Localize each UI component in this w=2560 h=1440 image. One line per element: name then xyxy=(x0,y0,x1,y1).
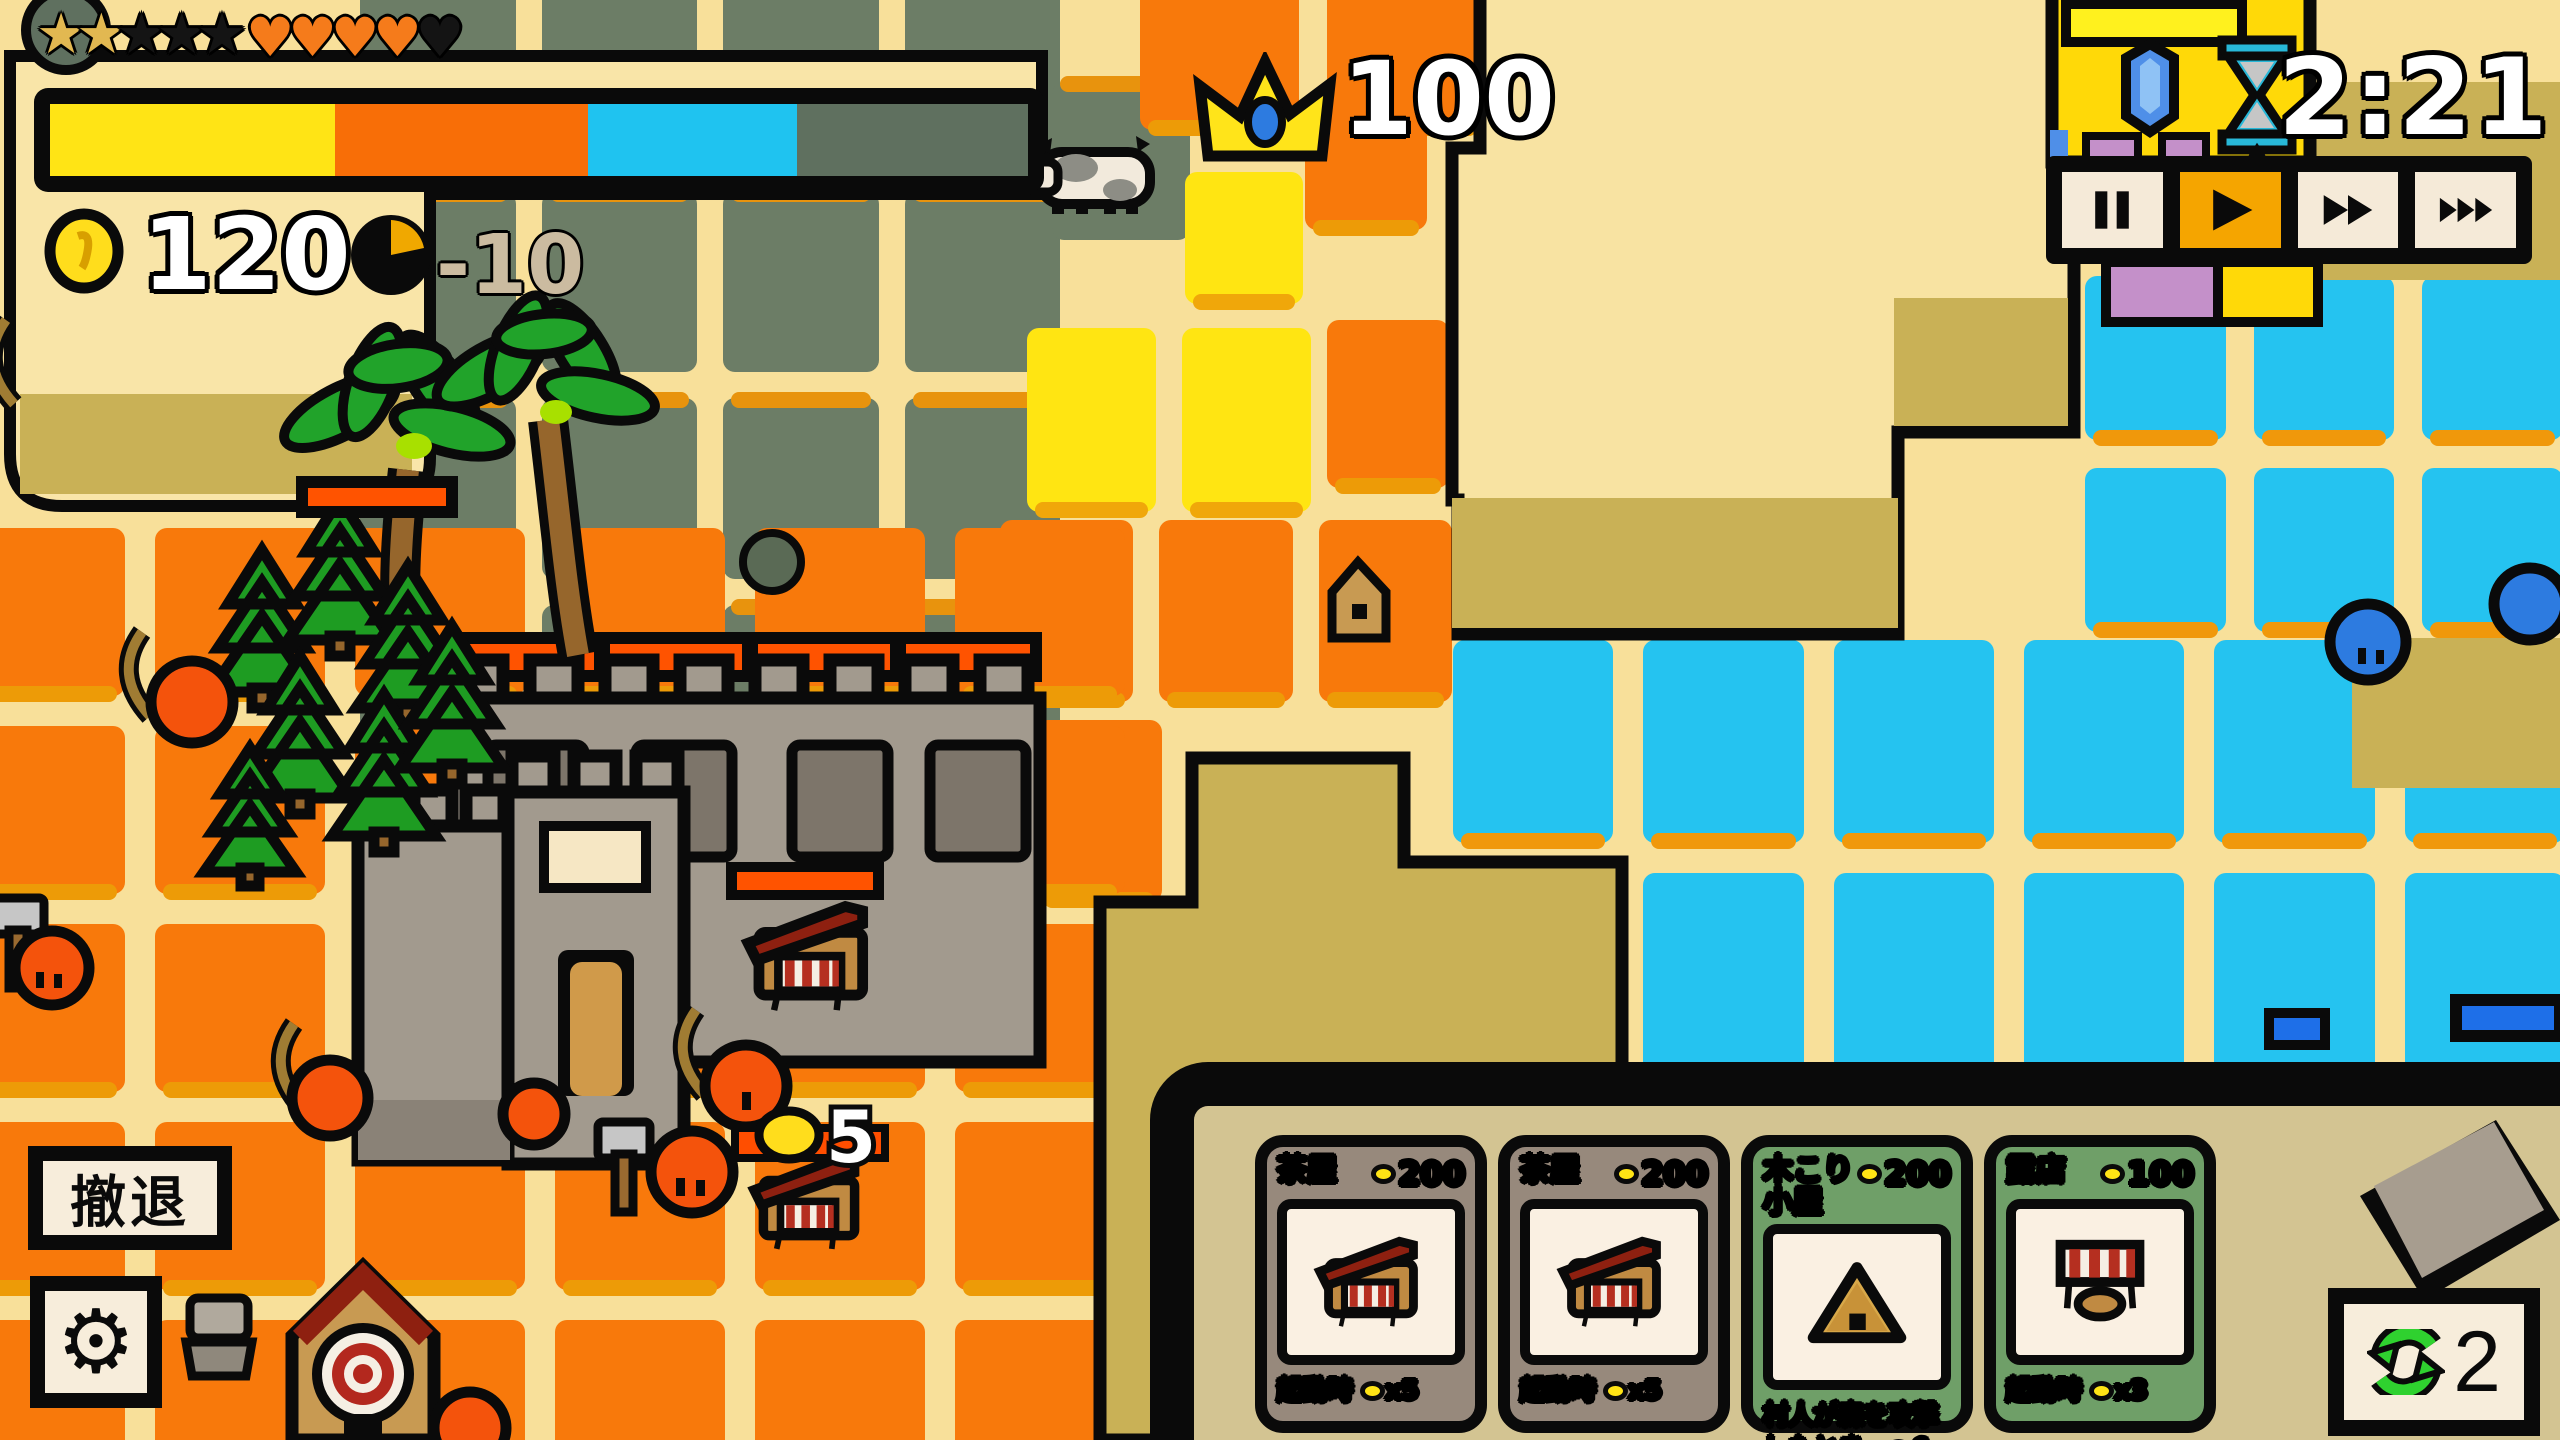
shop-card[interactable]: 茶屋 200 起動時 x5 xyxy=(1255,1135,1487,1433)
progress-segment xyxy=(50,104,335,176)
card-art xyxy=(1277,1199,1465,1365)
level-stars: ★★★★★ xyxy=(36,2,237,67)
recycle-icon xyxy=(2367,1329,2445,1395)
crown-icon xyxy=(1190,52,1340,170)
timer: 2:21 xyxy=(2278,36,2550,159)
reroll-button[interactable]: 2 xyxy=(2328,1288,2540,1436)
card-description: 村人が森を攻撃したとき、6 xyxy=(1763,1400,1951,1440)
coin-icon xyxy=(1360,1381,1385,1401)
coin-icon xyxy=(1857,1164,1882,1184)
shop-card[interactable]: 茶屋 200 起動時 x5 xyxy=(1498,1135,1730,1433)
card-cost: 200 xyxy=(1398,1155,1465,1193)
heart-icon: ♥ xyxy=(288,6,330,69)
star-icon: ★ xyxy=(157,2,197,67)
progress-segment xyxy=(588,104,797,176)
coin-icon xyxy=(2100,1164,2125,1184)
coin-icon xyxy=(1371,1164,1396,1184)
card-cost: 200 xyxy=(1641,1155,1708,1193)
heart-icon: ♥ xyxy=(331,6,373,69)
card-cost: 200 xyxy=(1884,1155,1951,1193)
progress-segment xyxy=(797,104,1028,176)
income-pie-icon xyxy=(348,212,434,298)
progress-segment xyxy=(335,104,588,176)
shop-card[interactable]: 露店 100 起動時 x3 xyxy=(1984,1135,2216,1433)
card-title: 茶屋 xyxy=(1520,1155,1580,1187)
crown-score: 100 xyxy=(1342,40,1555,159)
card-title: 露店 xyxy=(2006,1155,2066,1187)
game-viewport[interactable]: 5 xyxy=(0,0,2560,1440)
heart-icon: ♥ xyxy=(373,6,415,69)
star-icon: ★ xyxy=(76,2,116,67)
star-icon: ★ xyxy=(36,2,76,67)
gear-icon: ⚙ xyxy=(57,1298,136,1386)
star-icon: ★ xyxy=(197,2,237,67)
coin-delta: -10 xyxy=(436,218,584,313)
settings-button[interactable]: ⚙ xyxy=(30,1276,162,1408)
retreat-button[interactable]: 撤退 xyxy=(28,1146,232,1250)
card-title: 茶屋 xyxy=(1277,1155,1337,1187)
heart-icon: ♥ xyxy=(246,6,288,69)
card-art xyxy=(1520,1199,1708,1365)
card-description: 起動時 x5 xyxy=(1277,1375,1465,1408)
star-icon: ★ xyxy=(116,2,156,67)
fast-forward-2x-button[interactable] xyxy=(2298,172,2399,248)
heart-icon: ♥ xyxy=(416,6,458,69)
play-button[interactable] xyxy=(2180,172,2281,248)
fast-forward-3x-button[interactable] xyxy=(2415,172,2516,248)
coin-icon xyxy=(1603,1381,1628,1401)
playback-controls xyxy=(2046,156,2532,264)
coin-icon xyxy=(44,208,124,294)
progress-bar xyxy=(34,88,1044,192)
card-art xyxy=(2006,1199,2194,1365)
shop-card[interactable]: 木こり小屋 200 村人が森を攻撃したとき、6 xyxy=(1741,1135,1973,1433)
coin-icon xyxy=(2089,1381,2114,1401)
card-description: 起動時 x3 xyxy=(2006,1375,2194,1408)
lives-hearts: ♥♥♥♥♥ xyxy=(246,6,458,69)
pause-button[interactable] xyxy=(2062,172,2163,248)
card-description: 起動時 x5 xyxy=(1520,1375,1708,1408)
coin-count: 120 xyxy=(142,196,351,313)
card-title: 木こり小屋 xyxy=(1763,1155,1857,1218)
coin-icon xyxy=(1614,1164,1639,1184)
card-cost: 100 xyxy=(2127,1155,2194,1193)
reroll-count: 2 xyxy=(2453,1313,2501,1412)
card-art xyxy=(1763,1224,1951,1390)
